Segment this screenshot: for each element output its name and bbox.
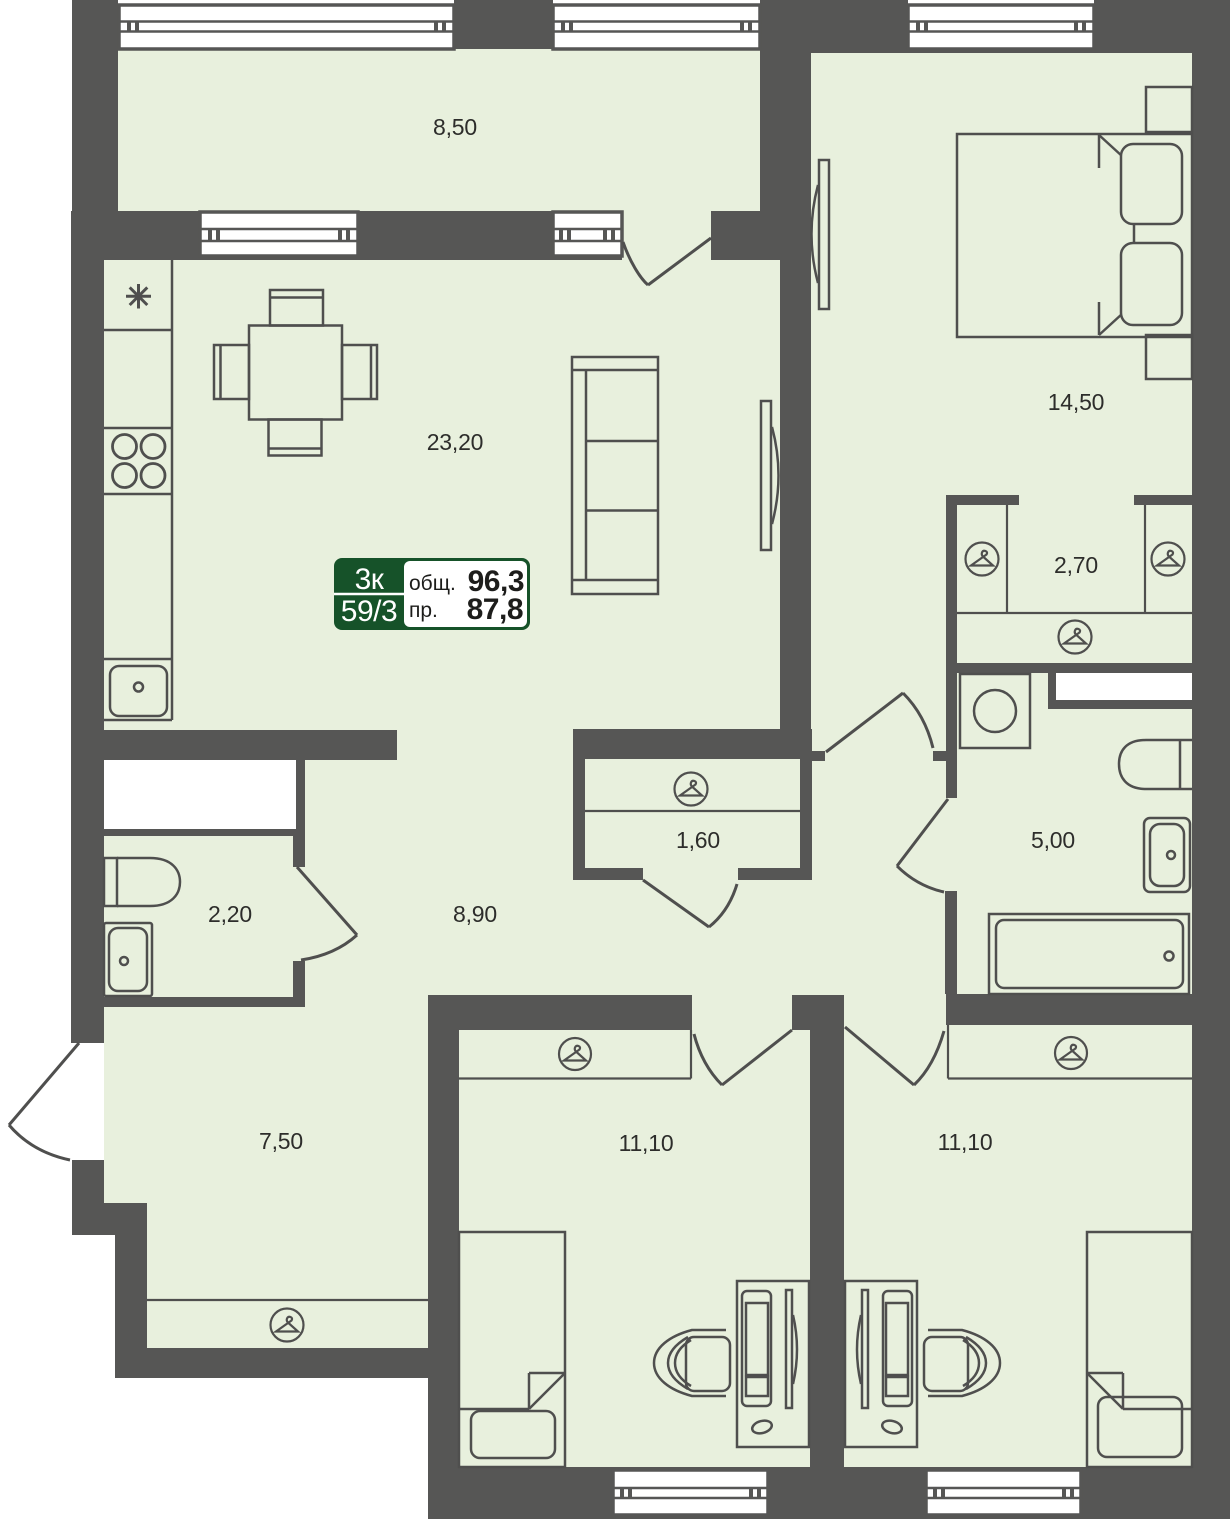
svg-text:3к: 3к bbox=[355, 563, 385, 596]
svg-text:11,10: 11,10 bbox=[619, 1130, 674, 1156]
svg-text:8,90: 8,90 bbox=[453, 901, 497, 927]
svg-text:2,70: 2,70 bbox=[1054, 552, 1098, 578]
svg-text:1,60: 1,60 bbox=[676, 827, 720, 853]
svg-text:87,8: 87,8 bbox=[467, 593, 523, 626]
svg-text:7,50: 7,50 bbox=[259, 1128, 303, 1154]
svg-text:8,50: 8,50 bbox=[433, 114, 477, 140]
svg-text:59/3: 59/3 bbox=[341, 595, 397, 628]
svg-text:23,20: 23,20 bbox=[427, 429, 484, 455]
svg-text:пр.: пр. bbox=[409, 599, 438, 622]
svg-text:общ.: общ. bbox=[409, 572, 456, 595]
svg-text:2,20: 2,20 bbox=[208, 901, 252, 927]
svg-text:11,10: 11,10 bbox=[938, 1129, 993, 1155]
svg-text:14,50: 14,50 bbox=[1048, 389, 1105, 415]
svg-text:5,00: 5,00 bbox=[1031, 827, 1075, 853]
